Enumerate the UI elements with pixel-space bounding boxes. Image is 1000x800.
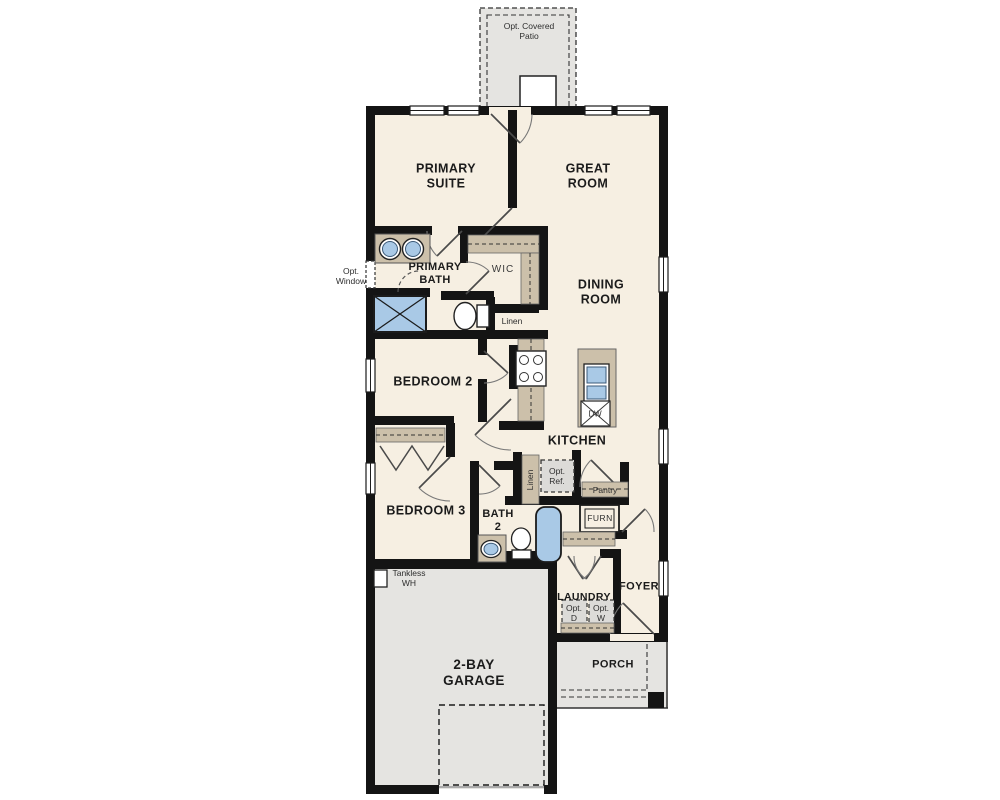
- floorplan-canvas: Opt. Covered Patio PRIMARY SUITE GREAT R…: [0, 0, 1000, 800]
- toilet-primary: [454, 303, 489, 330]
- furnace: [580, 505, 619, 532]
- garage-floor: [372, 565, 553, 789]
- linen-hall-closet: [522, 455, 539, 504]
- laundry-shelf: [561, 623, 614, 633]
- pantry-shelf: [582, 482, 628, 497]
- dishwasher: [581, 401, 610, 426]
- island-sink: [584, 364, 609, 402]
- kitchen-island: [578, 349, 616, 427]
- bath2-vanity: [478, 535, 506, 562]
- double-vanity: [375, 234, 430, 263]
- hall-closet-shelf: [563, 532, 615, 546]
- tankless-water-heater: [374, 570, 387, 587]
- porch-column: [648, 692, 664, 708]
- floorplan-drawing: [0, 0, 1000, 800]
- toilet-bath2: [512, 528, 532, 559]
- shower: [374, 296, 426, 332]
- bathtub: [536, 507, 561, 562]
- optional-window-icon: [366, 261, 375, 288]
- range: [516, 351, 546, 386]
- optional-refrigerator: [541, 460, 574, 492]
